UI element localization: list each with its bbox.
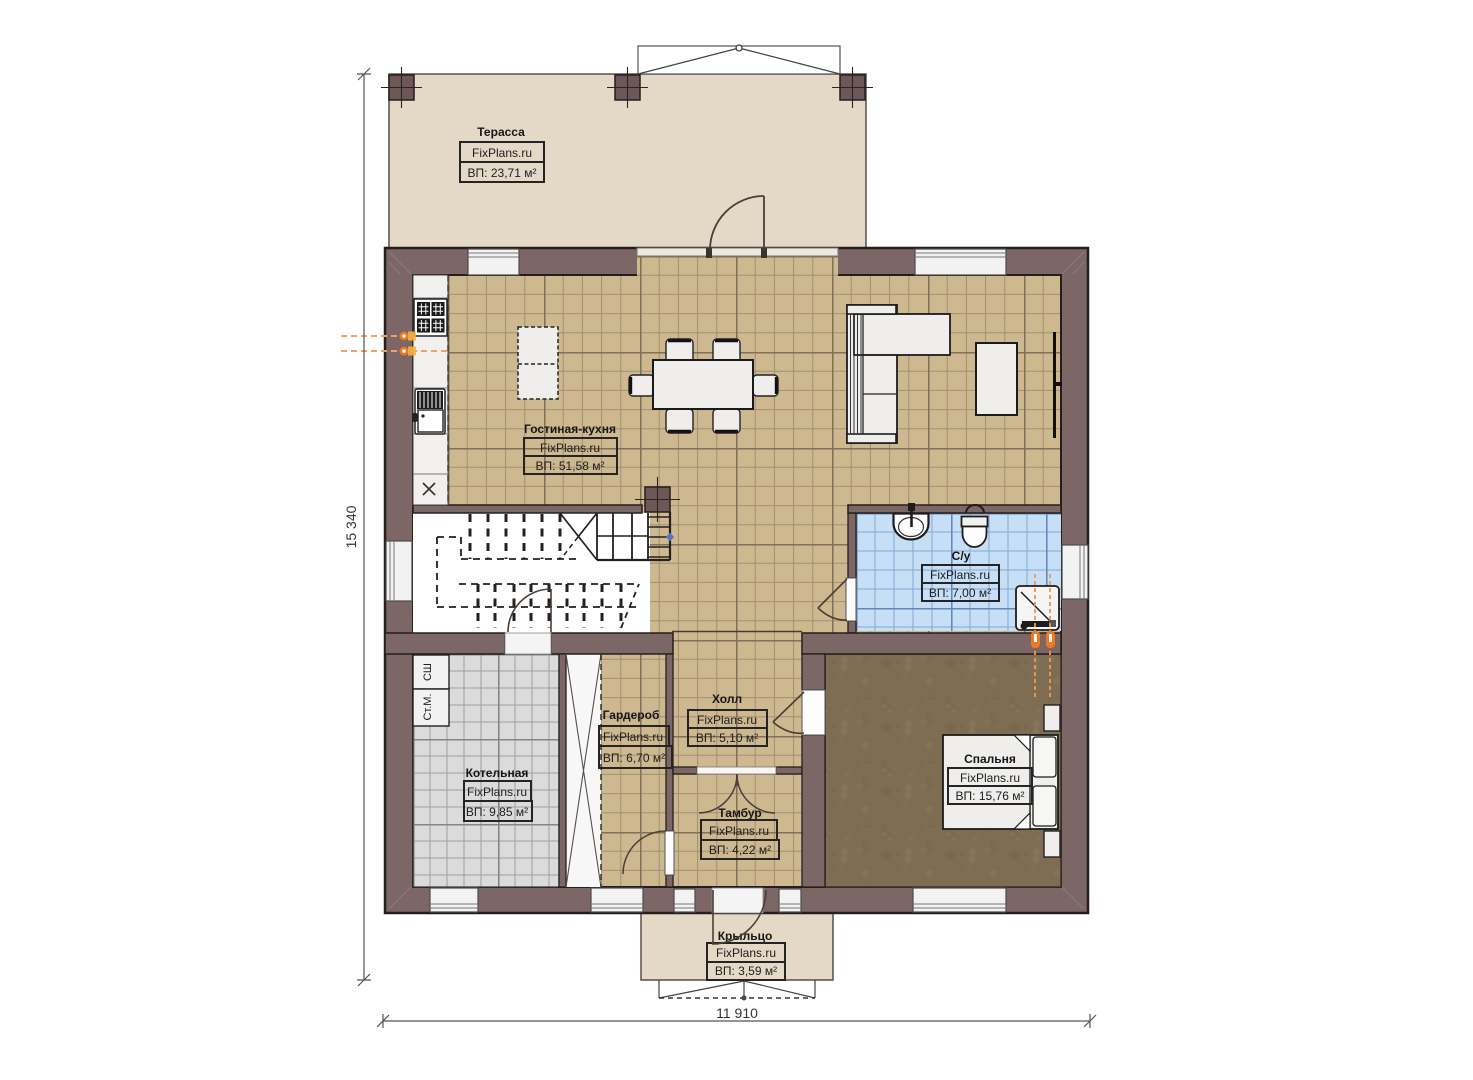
svg-text:ВП: 6,70 м²: ВП: 6,70 м²	[603, 751, 665, 765]
svg-text:15 340: 15 340	[343, 505, 359, 548]
svg-text:FixPlans.ru: FixPlans.ru	[709, 824, 769, 838]
svg-text:Ст.М.: Ст.М.	[422, 693, 434, 720]
svg-text:Гардероб: Гардероб	[603, 708, 660, 722]
svg-text:FixPlans.ru: FixPlans.ru	[467, 785, 527, 799]
svg-text:Котельная: Котельная	[466, 766, 529, 780]
svg-text:Спальня: Спальня	[964, 752, 1016, 766]
svg-text:ВП: 23,71 м²: ВП: 23,71 м²	[468, 166, 537, 180]
svg-text:ВП: 15,76 м²: ВП: 15,76 м²	[956, 789, 1025, 803]
svg-text:FixPlans.ru: FixPlans.ru	[930, 568, 990, 582]
svg-text:С/у: С/у	[952, 549, 971, 563]
svg-text:Тамбур: Тамбур	[718, 806, 762, 820]
svg-text:FixPlans.ru: FixPlans.ru	[960, 771, 1020, 785]
svg-text:FixPlans.ru: FixPlans.ru	[540, 441, 600, 455]
svg-text:ВП: 7,00 м²: ВП: 7,00 м²	[929, 586, 991, 600]
svg-text:ВП: 5,10 м²: ВП: 5,10 м²	[696, 731, 758, 745]
svg-text:Холл: Холл	[712, 692, 742, 706]
svg-text:ВП: 3,59 м²: ВП: 3,59 м²	[715, 964, 777, 978]
svg-text:Крыльцо: Крыльцо	[718, 929, 773, 943]
svg-text:Гостиная-кухня: Гостиная-кухня	[524, 422, 616, 436]
svg-text:Терасса: Терасса	[477, 125, 525, 139]
svg-text:FixPlans.ru: FixPlans.ru	[603, 730, 663, 744]
svg-text:ВП: 9,85 м²: ВП: 9,85 м²	[466, 805, 528, 819]
svg-text:FixPlans.ru: FixPlans.ru	[697, 713, 757, 727]
svg-text:СШ: СШ	[422, 663, 434, 681]
svg-text:FixPlans.ru: FixPlans.ru	[716, 946, 776, 960]
svg-text:11 910: 11 910	[716, 1005, 758, 1021]
svg-text:FixPlans.ru: FixPlans.ru	[472, 146, 532, 160]
svg-text:ВП: 51,58 м²: ВП: 51,58 м²	[536, 459, 605, 473]
svg-text:ВП: 4,22 м²: ВП: 4,22 м²	[709, 843, 771, 857]
